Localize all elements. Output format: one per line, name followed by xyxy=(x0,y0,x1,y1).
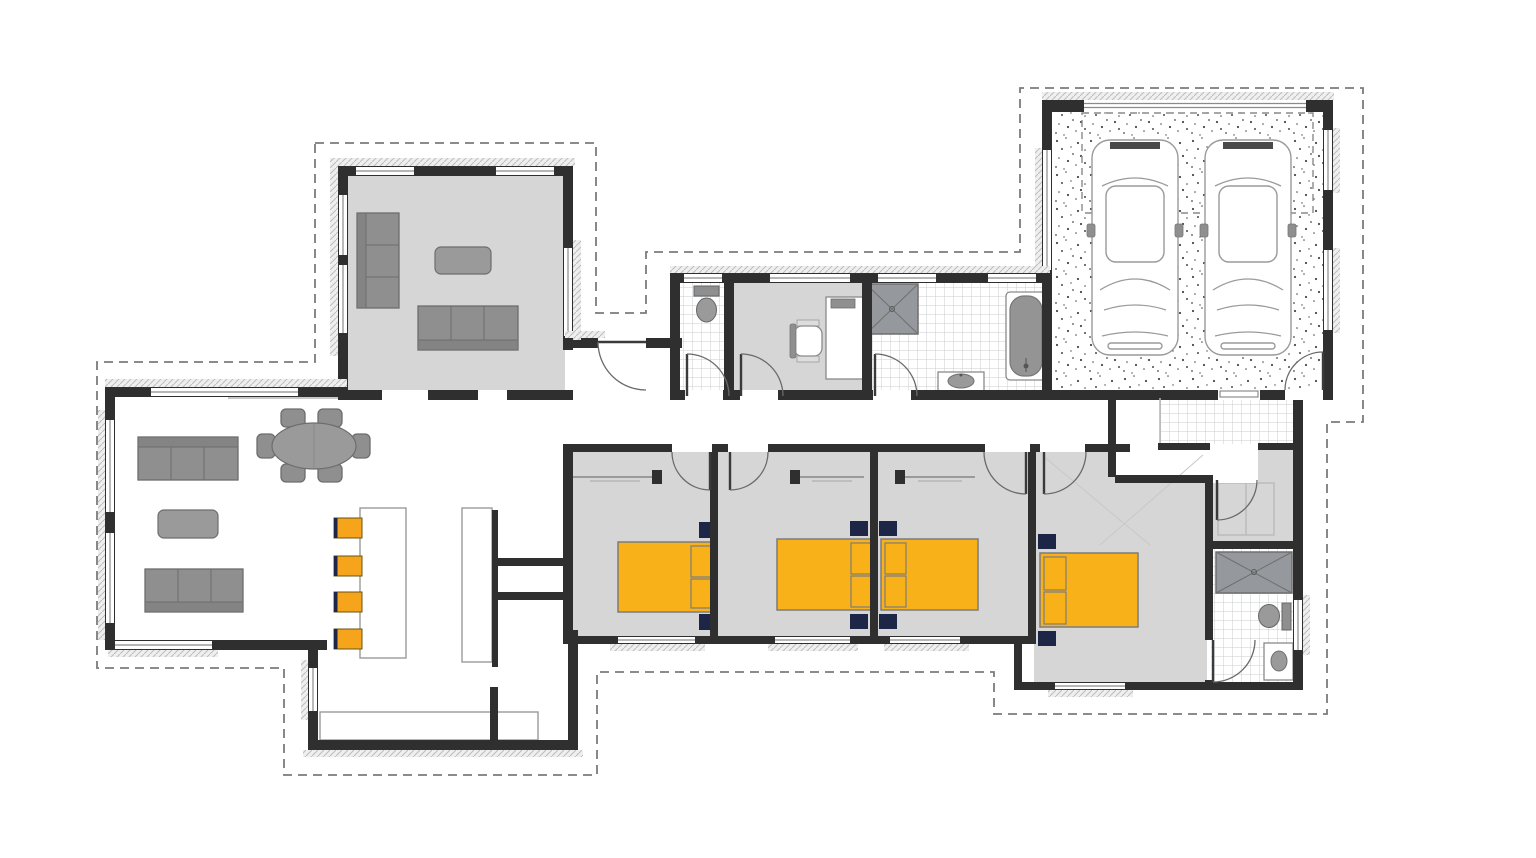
kitchen xyxy=(320,508,538,740)
bedside-table xyxy=(850,614,868,629)
shower xyxy=(866,284,918,334)
wc-fixtures xyxy=(694,286,719,322)
bedside-table xyxy=(879,614,897,629)
vanity-basin xyxy=(938,372,984,392)
wardrobe-jamb xyxy=(895,470,905,484)
sofa xyxy=(138,437,238,480)
shower xyxy=(1216,552,1292,593)
floor-plan-canvas xyxy=(0,0,1536,858)
bar-stool xyxy=(334,556,362,576)
dining-set xyxy=(257,409,370,482)
toilet-bowl xyxy=(1259,605,1280,628)
garage-door xyxy=(1084,100,1306,112)
toilet-cistern xyxy=(1282,603,1291,630)
sofa xyxy=(145,569,243,612)
bedside-table xyxy=(850,521,868,536)
rear-entry-door xyxy=(598,342,646,390)
monitor xyxy=(831,299,855,308)
sofa xyxy=(357,213,399,308)
living-furniture xyxy=(138,395,370,612)
sofa xyxy=(418,306,518,350)
bedside-table xyxy=(1038,631,1056,646)
entry-corridor-floor xyxy=(1113,450,1258,476)
kitchen-island xyxy=(360,508,406,658)
rear-bench-counter xyxy=(320,712,538,740)
car xyxy=(1087,140,1183,355)
floor-plan-drawing xyxy=(0,0,1536,858)
bar-stools xyxy=(334,518,362,649)
toilet-bowl xyxy=(697,298,717,322)
car xyxy=(1200,140,1296,355)
coffee-table xyxy=(435,247,491,274)
garage-entry-door xyxy=(1220,391,1258,397)
desk xyxy=(826,297,866,379)
bathtub xyxy=(1006,292,1046,380)
vanity-basin xyxy=(1264,643,1293,680)
kitchen-bench xyxy=(462,508,492,662)
office-chair xyxy=(790,320,822,362)
bar-stool xyxy=(334,629,362,649)
wc-floor-tiles xyxy=(678,281,726,392)
wardrobe-jamb xyxy=(790,470,800,484)
wardrobe-jamb xyxy=(652,470,662,484)
bedside-table xyxy=(1038,534,1056,549)
bedside-table xyxy=(879,521,897,536)
coffee-table xyxy=(158,510,218,538)
toilet-cistern xyxy=(694,286,719,296)
bar-stool xyxy=(334,518,362,538)
entry-floor-tiles xyxy=(1160,398,1293,444)
bar-stool xyxy=(334,592,362,612)
